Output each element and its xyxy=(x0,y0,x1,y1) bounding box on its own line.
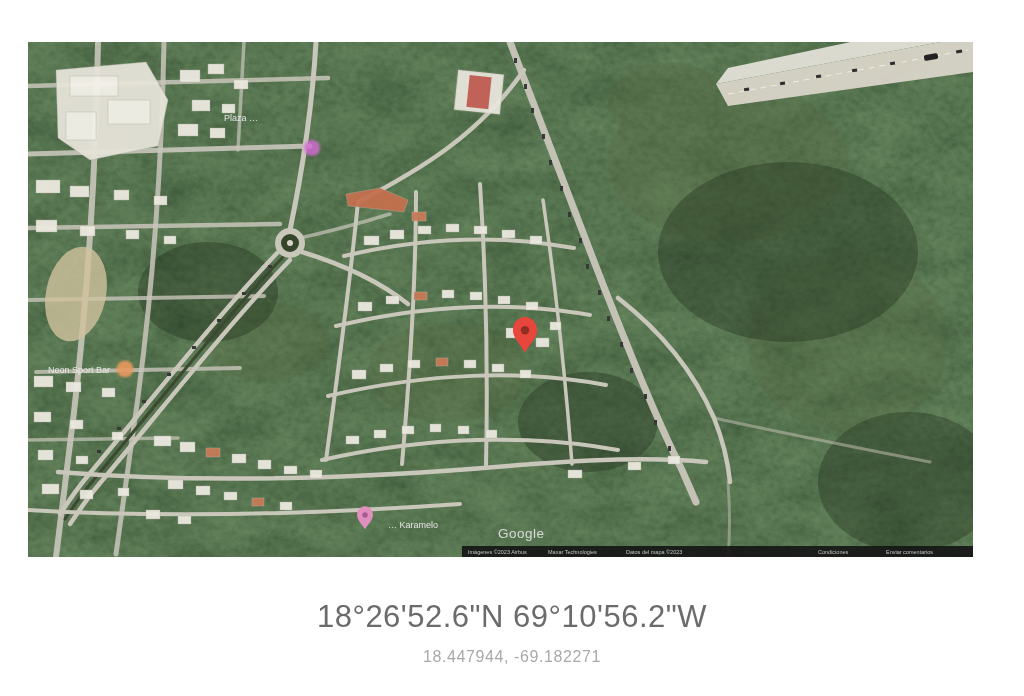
satellite-map-image: Plaza … Neon Sport Bar … Karamelo Google… xyxy=(28,42,973,557)
dms-coordinates: 18°26'52.6"N 69°10'56.2"W xyxy=(0,599,1024,635)
map-label-karamelo: … Karamelo xyxy=(388,520,438,530)
map-label-sport-bar: Neon Sport Bar xyxy=(48,365,110,375)
google-watermark: Google xyxy=(498,526,545,541)
plaza-marker-icon xyxy=(304,140,320,156)
attribution-text: Datos del mapa ©2023 xyxy=(626,549,682,555)
attribution-text: Condiciones xyxy=(818,549,849,555)
attribution-bar: Imágenes ©2023 Airbus Maxar Technologies… xyxy=(462,546,973,557)
attribution-text: Maxar Technologies xyxy=(548,549,597,555)
map-label-plaza: Plaza … xyxy=(224,113,258,123)
attribution-text: Imágenes ©2023 Airbus xyxy=(468,549,527,555)
scanned-map-page: Plaza … Neon Sport Bar … Karamelo Google… xyxy=(0,0,1024,696)
decimal-coordinates: 18.447944, -69.182271 xyxy=(0,648,1024,666)
attribution-text: Enviar comentarios xyxy=(886,549,933,555)
sport-bar-marker-icon xyxy=(117,361,134,378)
roundabout xyxy=(278,231,302,255)
